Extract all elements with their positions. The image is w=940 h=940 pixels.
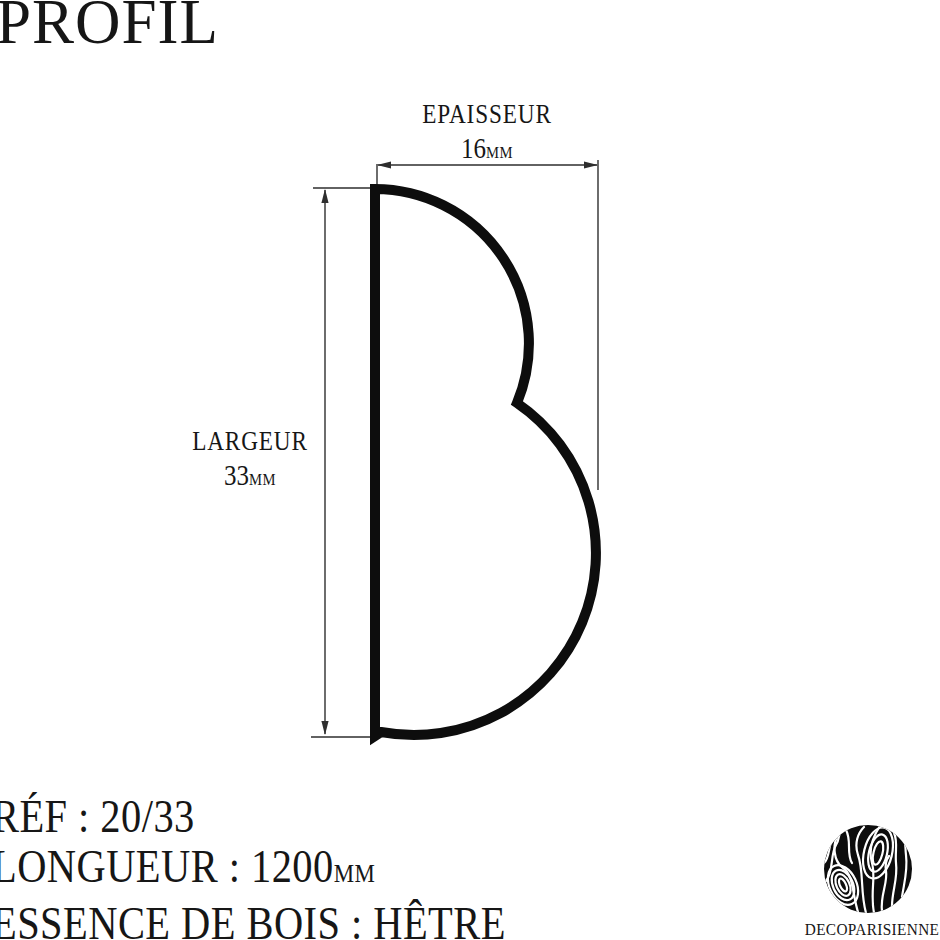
spec-reference: RÉF : 20/33 — [0, 792, 506, 842]
arrowhead-up-icon — [321, 189, 328, 203]
spec-length-label: LONGUEUR : 1200 — [0, 841, 334, 892]
profile-outline — [375, 189, 596, 736]
spec-material: ESSENCE DE BOIS : HÊTRE — [0, 899, 506, 940]
thickness-value: 16 — [461, 132, 486, 164]
width-value-line: 33MM — [147, 459, 353, 492]
width-label: LARGEUR — [147, 426, 353, 457]
thickness-value-line: 16MM — [358, 132, 616, 165]
arrowhead-down-icon — [321, 721, 328, 735]
thickness-unit: MM — [486, 143, 513, 162]
page-title: PROFIL — [0, 0, 219, 59]
thickness-label: EPAISSEUR — [358, 99, 616, 130]
width-value: 33 — [224, 459, 249, 491]
width-label-group: LARGEUR 33MM — [147, 426, 353, 492]
spec-block: RÉF : 20/33 LONGUEUR : 1200MM ESSENCE DE… — [0, 792, 506, 940]
thickness-dimension — [377, 160, 598, 490]
thickness-label-group: EPAISSEUR 16MM — [358, 99, 616, 165]
brand-name: DECOPARISIENNE — [805, 920, 940, 940]
wood-grain-logo-icon — [822, 824, 912, 913]
spec-length: LONGUEUR : 1200MM — [0, 842, 506, 899]
width-unit: MM — [249, 470, 276, 489]
spec-length-unit: MM — [334, 859, 376, 888]
profile-spec-sheet: PROFIL EPAISSEUR 16MM LARGEUR 33MM RÉF :… — [0, 0, 940, 940]
